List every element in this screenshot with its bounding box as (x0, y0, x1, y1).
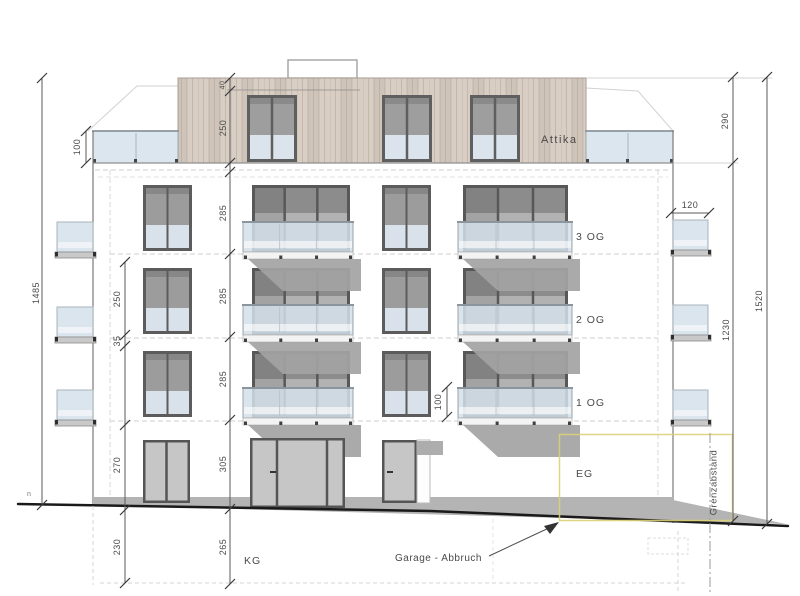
floor-3og-label: 3 OG (576, 231, 605, 243)
juliet-glass-stripe (674, 325, 707, 331)
juliet-post-base (93, 252, 96, 257)
dimension-label: 40 (220, 81, 227, 90)
dimension-label: 265 (218, 539, 228, 556)
balcony-post-base (496, 339, 499, 343)
dimension-label: 1230 (721, 319, 731, 341)
dimension-label: 285 (218, 371, 228, 388)
attika-label: Attika (541, 134, 578, 146)
balcony-floor-band (243, 335, 353, 342)
garage-abbruch-label: Garage - Abbruch (395, 553, 482, 564)
juliet-balcony-bar (55, 420, 96, 426)
floor-eg-label: EG (576, 468, 593, 480)
balcony-post-base (244, 339, 247, 343)
balcony-post-base (315, 339, 318, 343)
door-handle (270, 471, 276, 473)
juliet-post-base (93, 420, 96, 425)
dimension-label: 270 (112, 457, 122, 474)
balcony-post-base (279, 339, 282, 343)
dimension-label: 100 (72, 139, 82, 156)
dimension-label: 290 (720, 113, 730, 130)
dimension-label: 35 (112, 335, 122, 346)
balcony-floor-band (243, 418, 353, 425)
balcony-post-base (496, 422, 499, 426)
juliet-glass-stripe (58, 410, 92, 416)
balcony-post-base (349, 422, 352, 426)
juliet-balcony-bar (671, 250, 711, 256)
balcony-post-base (459, 339, 462, 343)
balcony-glass-stripe (244, 241, 352, 248)
balcony-post-base (349, 256, 352, 260)
balcony-post-base (349, 339, 352, 343)
floor-1og-label: 1 OG (576, 397, 605, 409)
balcony-post-base (496, 256, 499, 260)
juliet-post-base (708, 420, 711, 425)
balcony-glass-stripe (244, 324, 352, 331)
balcony-glass-stripe (244, 407, 352, 414)
juliet-post-base (93, 337, 96, 342)
garage-arrow-line (489, 527, 551, 556)
balcony-post-base (244, 422, 247, 426)
juliet-glass-stripe (58, 242, 92, 248)
garage-arrow-head (544, 522, 559, 534)
sidelight-shadow (417, 441, 443, 455)
dimension-label: 285 (218, 205, 228, 222)
elevation-drawing: 1485100250352702304025028528528530526510… (0, 0, 800, 596)
dimension-label: 1485 (31, 282, 41, 304)
balcony-shadow (463, 425, 580, 457)
balcony-post-base (315, 422, 318, 426)
juliet-post-base (55, 420, 58, 425)
juliet-post-base (708, 335, 711, 340)
balcony-post-base (279, 256, 282, 260)
balcony-post-base (568, 256, 571, 260)
balcony-glass-stripe (459, 407, 571, 414)
dimension-label: 100 (433, 394, 443, 411)
balcony-post-base (279, 422, 282, 426)
dimension-label: 120 (682, 200, 699, 210)
juliet-balcony-bar (55, 337, 96, 343)
balcony-post-base (244, 256, 247, 260)
balcony-floor-band (458, 418, 572, 425)
floor-2og-label: 2 OG (576, 314, 605, 326)
elevation-svg: 1485100250352702304025028528528530526510… (0, 0, 800, 596)
dimension-label: 305 (218, 456, 228, 473)
balcony-post-base (533, 422, 536, 426)
balcony-glass-stripe (459, 241, 571, 248)
juliet-balcony-bar (55, 252, 96, 258)
balcony-post-base (533, 339, 536, 343)
balcony-post-base (568, 422, 571, 426)
door-handle (387, 471, 393, 473)
roof-outline-left (88, 86, 178, 131)
entrance-door-panel (253, 441, 343, 506)
balcony-post-base (459, 256, 462, 260)
balcony-post-base (315, 256, 318, 260)
balcony-post-base (459, 422, 462, 426)
juliet-post-base (671, 335, 674, 340)
dimension-label: 285 (218, 288, 228, 305)
terrace-railing (586, 131, 673, 163)
juliet-post-base (55, 337, 58, 342)
balcony-floor-band (243, 252, 353, 259)
juliet-balcony-bar (671, 420, 711, 426)
balcony-floor-band (458, 335, 572, 342)
juliet-balcony-bar (671, 335, 711, 341)
roof-access-box (288, 60, 357, 78)
dimension-label: 250 (218, 120, 228, 137)
juliet-post-base (708, 250, 711, 255)
garage-outline (648, 538, 688, 554)
dimension-label: 250 (112, 291, 122, 308)
juliet-post-base (55, 252, 58, 257)
grenzabstand-label: Grenzabstand (709, 443, 720, 523)
juliet-post-base (671, 250, 674, 255)
balcony-post-base (568, 339, 571, 343)
floor-kg-label: KG (244, 555, 261, 567)
roof-outline-right (586, 88, 673, 131)
dimension-label: 1520 (754, 290, 764, 312)
juliet-glass-stripe (58, 327, 92, 333)
juliet-post-base (671, 420, 674, 425)
balcony-glass-stripe (459, 324, 571, 331)
juliet-glass-stripe (674, 410, 707, 416)
dimension-label: 230 (112, 539, 122, 556)
balcony-post-base (533, 256, 536, 260)
balcony-floor-band (458, 252, 572, 259)
juliet-glass-stripe (674, 240, 707, 246)
level-marker: n (27, 491, 31, 498)
